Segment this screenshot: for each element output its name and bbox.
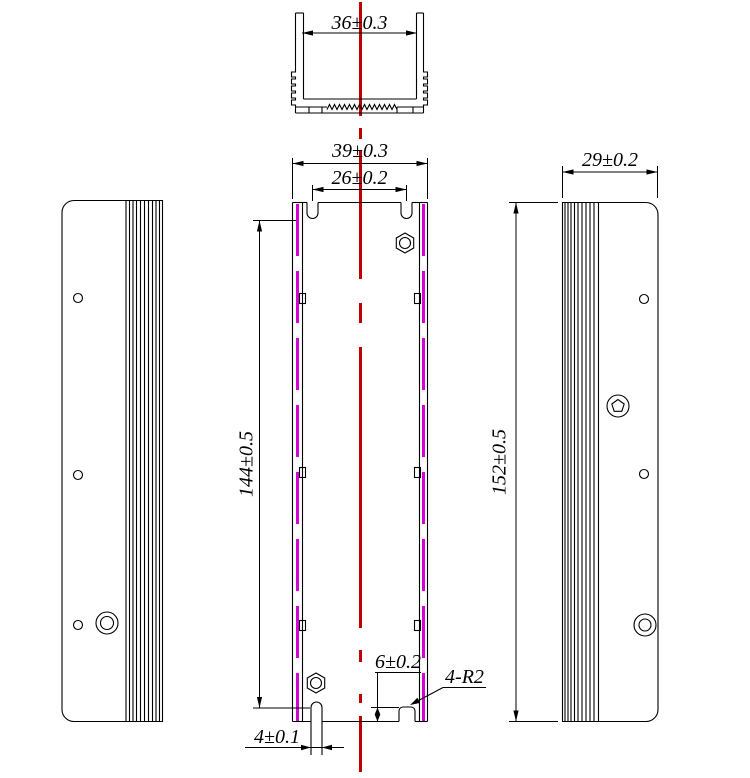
mount-hole [74,471,83,480]
dim-bottom-notch-height: 6±0.2 [371,651,421,722]
dim-text-39: 39±0.3 [331,140,388,162]
dim-notch-radius: 4-R2 [410,666,486,705]
right-side-view [563,203,659,722]
dim-text-144: 144±0.5 [236,431,258,497]
dim-top-inner-width: 36±0.3 [302,12,417,34]
bottom-notch [399,707,415,722]
mechanical-drawing-sheet: 36±0.3 [0,0,750,778]
right-view-fins [565,203,599,722]
right-view-outline [563,203,659,722]
mount-hole [74,294,83,303]
hex-nut-bottom [307,673,324,693]
screw-boss [96,612,118,634]
dim-side-depth: 29±0.2 [563,149,658,198]
dim-text-4r2: 4-R2 [445,666,484,688]
left-side-view [62,201,163,722]
dim-bottom-slot-width: 4±0.1 [245,726,344,750]
left-view-fins [126,201,160,722]
dim-text-36: 36±0.3 [331,12,388,34]
left-wall [292,13,296,113]
socket-screw [607,395,629,417]
right-wall [424,13,428,113]
dim-text-29: 29±0.2 [582,149,638,171]
hex-nut-top [396,233,413,253]
top-slot-right [401,203,412,219]
dim-text-4: 4±0.1 [254,726,300,748]
mount-hole [640,470,649,479]
dim-text-152: 152±0.5 [489,429,511,495]
drawing-canvas: 36±0.3 [0,0,750,778]
left-view-outline [62,201,163,722]
dim-text-26: 26±0.2 [332,167,388,189]
mount-hole [74,621,83,630]
screw-boss [634,614,656,636]
top-slot-left [307,203,318,219]
mount-hole [640,295,649,304]
dim-side-length: 152±0.5 [489,203,559,722]
dim-text-6: 6±0.2 [375,651,421,673]
